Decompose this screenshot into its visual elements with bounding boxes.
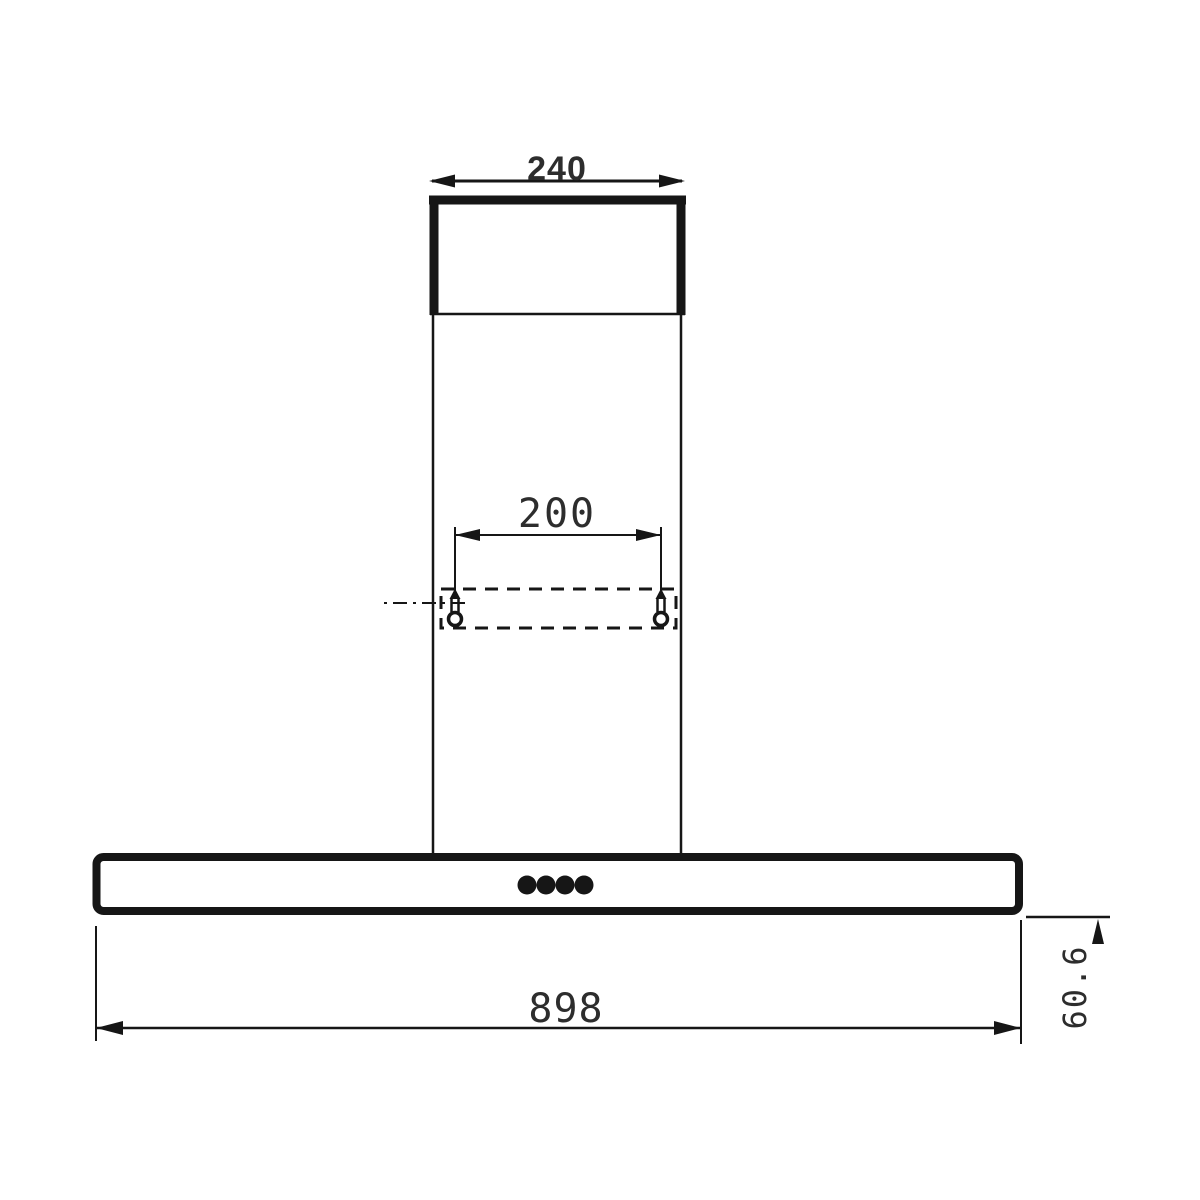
arrowhead-200-left: [455, 529, 480, 541]
control-button-3: [556, 876, 575, 895]
arrowhead-200-right: [636, 529, 661, 541]
dim-label-hood-height: 60.6: [1056, 944, 1094, 1029]
drawing-root: [96, 181, 1110, 1044]
keyhole-left-icon: [449, 613, 462, 626]
arrowhead-898-left: [96, 1021, 123, 1035]
mounting-bracket-dashed-outline: [441, 589, 676, 628]
keyhole-right-icon: [655, 613, 668, 626]
arrowhead-898-right: [994, 1021, 1021, 1035]
keyhole-left-stem: [452, 598, 459, 612]
keyhole-stems: [452, 598, 665, 612]
keyhole-right-stem: [658, 598, 665, 612]
arrowhead-240-left: [429, 175, 455, 188]
control-button-2: [537, 876, 556, 895]
dim-label-duct-width: 240: [527, 150, 587, 188]
dim-label-hood-width: 898: [528, 986, 603, 1032]
arrowhead-240-right: [659, 175, 685, 188]
hood-technical-diagram: 240 200 898 60.6: [0, 0, 1200, 1200]
arrowhead-606-up: [1092, 919, 1104, 944]
dimension-drawing: 240 200 898 60.6: [0, 0, 1200, 1200]
control-button-4: [575, 876, 594, 895]
duct-outline: [429, 196, 686, 315]
dim-label-mounting-spacing: 200: [518, 491, 596, 537]
control-button-1: [518, 876, 537, 895]
